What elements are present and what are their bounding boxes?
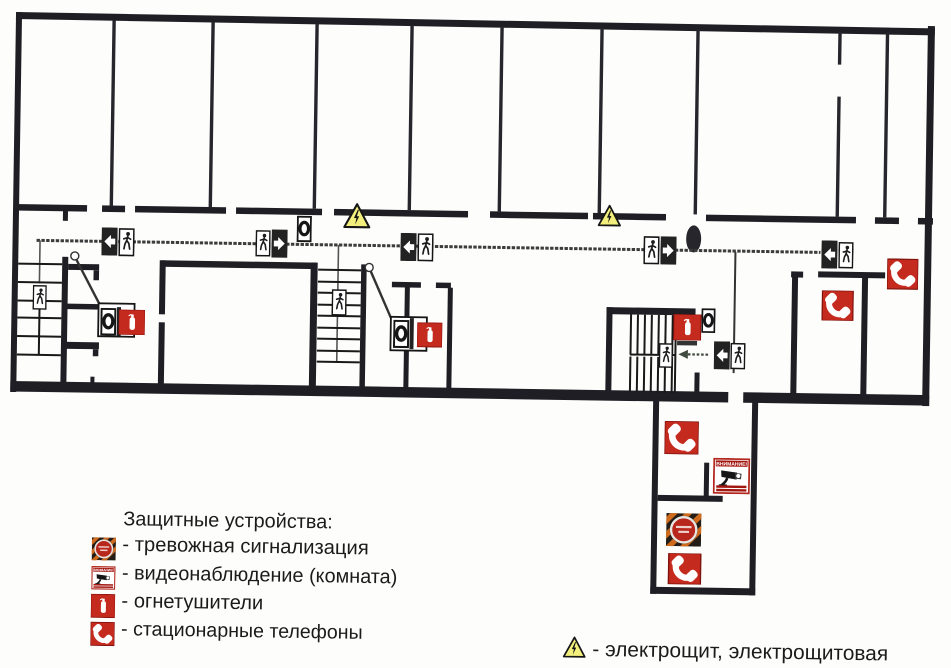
svg-text:- электрощит, электрощитовая: - электрощит, электрощитовая <box>592 638 888 666</box>
svg-text:Защитные устройства:: Защитные устройства: <box>123 508 333 533</box>
svg-text:- огнетушители: - огнетушители <box>121 590 263 614</box>
svg-text:- видеонаблюдение (комната): - видеонаблюдение (комната) <box>122 562 398 588</box>
svg-text:- тревожная сигнализация: - тревожная сигнализация <box>122 534 369 560</box>
svg-text:- стационарные телефоны: - стационарные телефоны <box>121 618 363 644</box>
